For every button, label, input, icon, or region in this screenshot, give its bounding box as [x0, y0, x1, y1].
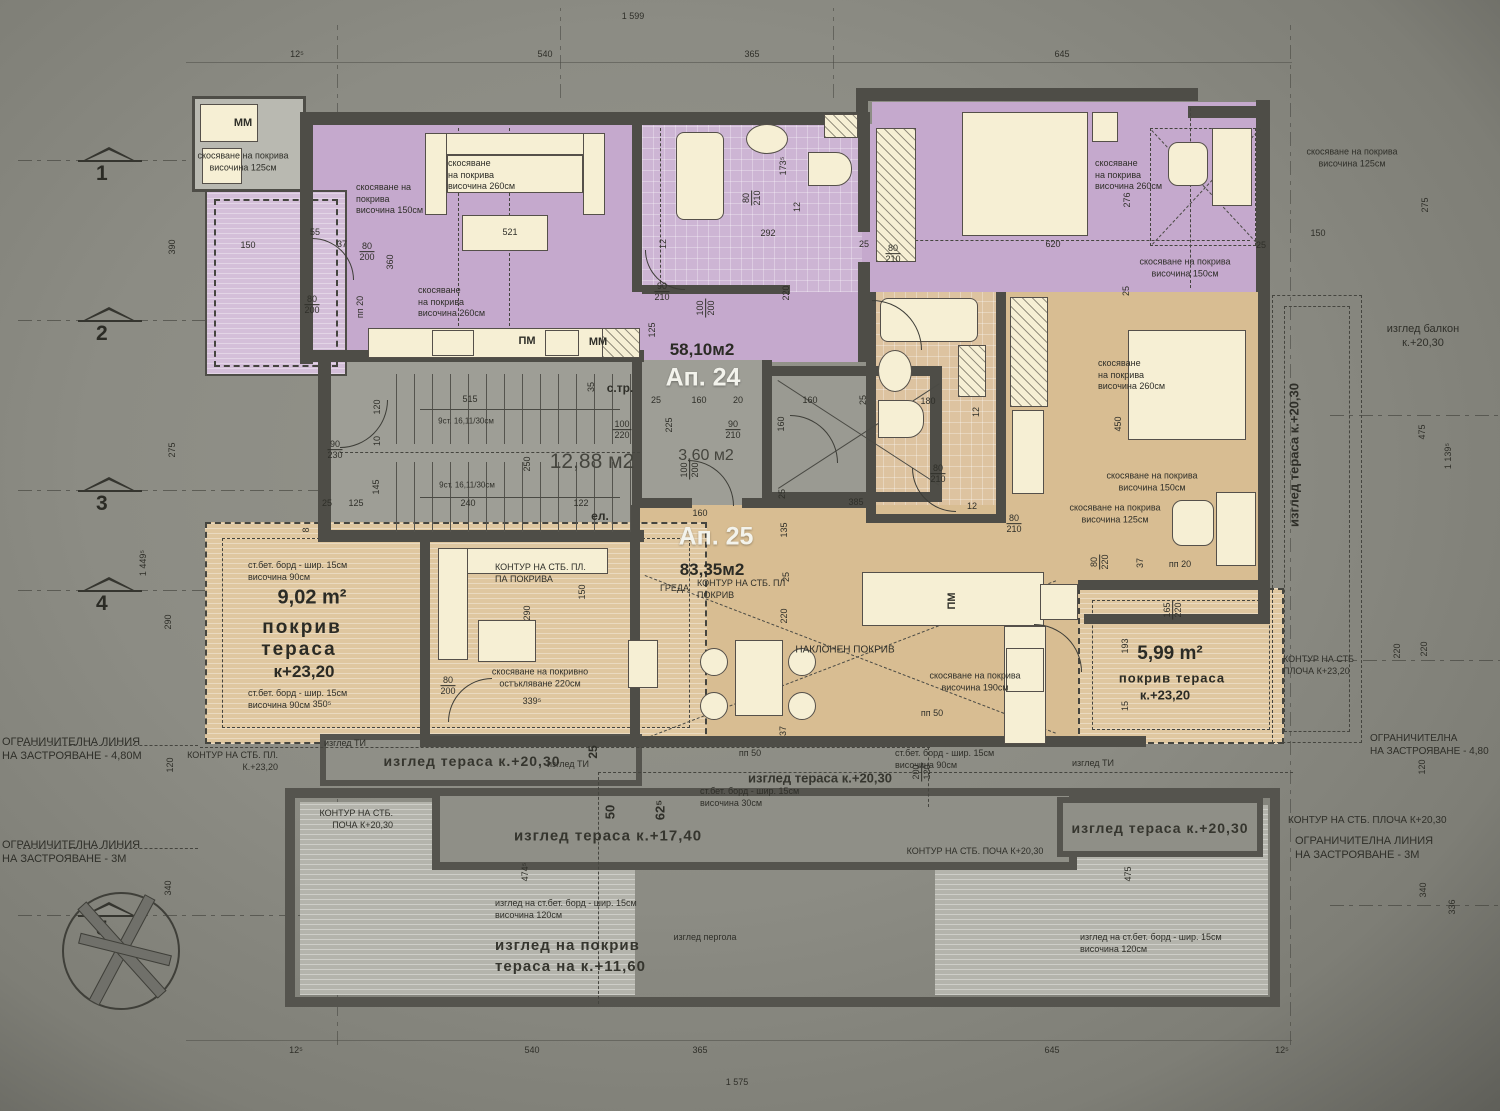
dim: 8 [301, 527, 311, 532]
contour-dash [598, 772, 1293, 773]
terrace-right-area: 5,99 m² [1137, 643, 1202, 665]
label-izgled-ti: изглед ТИ [324, 738, 366, 750]
dim-right: 1 139⁵ [1443, 443, 1453, 469]
dim: 173⁵ [778, 157, 788, 176]
label-pm-kitchen: ПМ [946, 592, 958, 609]
label-bord-120: изглед на ст.бет. борд - шир. 15см височ… [495, 898, 637, 921]
ap25-area: 83,35м2 [680, 560, 745, 580]
bath-cabinet [958, 345, 986, 397]
wall [420, 736, 642, 747]
dim: 339⁵ [523, 696, 542, 706]
bathtub [676, 132, 724, 220]
dining-chair [700, 692, 728, 720]
row-marker-4: 4 [96, 592, 108, 616]
row-marker-1: 1 [96, 162, 108, 186]
dim-right: 475 [1417, 424, 1427, 439]
wardrobe [1010, 297, 1048, 407]
label-roof-260: скосяване на покрива височина 260см [448, 158, 515, 193]
dim: 193 [1120, 638, 1130, 653]
wall [630, 736, 1146, 747]
wall [996, 292, 1006, 522]
dim: 25 [1121, 286, 1131, 296]
label-stair: с.тр. [607, 381, 634, 397]
terrace-table [478, 620, 536, 662]
dim-left: 290 [163, 614, 173, 629]
dim: 160 [692, 508, 707, 518]
dim-bottom: 645 [1044, 1045, 1059, 1055]
sofa [425, 133, 605, 155]
dim-door: 90210 [654, 281, 669, 303]
dim: 145 [371, 479, 381, 494]
shower-corner [824, 114, 858, 138]
label-izgled-pokriv-1160: изглед на покрив тераса на к.+11,60 [495, 935, 646, 977]
dim: 165220 [1162, 600, 1184, 619]
dim-door: 80210 [1006, 513, 1021, 535]
label-naklonen-pokriv: НАКЛОНЕН ПОКРИВ [795, 644, 894, 657]
label-limit-3-right: ОГРАНИЧИТЕЛНА ЛИНИЯ НА ЗАСТРОЯВАНЕ - 3М [1295, 834, 1433, 863]
stair-arrow-line [420, 497, 620, 498]
label-bord-90: ст.бет. борд - шир. 15см височина 90см [248, 560, 347, 583]
dim: 220 [779, 608, 789, 623]
row-marker-line [78, 590, 142, 592]
dim: 37 [337, 239, 347, 249]
dim: 276 [1122, 192, 1132, 207]
label-kontur-pocha-2030-left: КОНТУР НА СТБ. ПОЧА К+20,30 [278, 808, 393, 831]
dim: 180 [920, 396, 935, 406]
axis-line-row3 [18, 490, 333, 491]
dim: 292 [760, 228, 775, 238]
terrace-left-line2: тераса [261, 639, 336, 661]
terrace-left-line1: покрив [262, 617, 342, 639]
dim: 25 [586, 745, 600, 758]
tv-unit [628, 640, 658, 688]
dim: 475 [1123, 866, 1133, 881]
dim: пп 20 [1169, 559, 1191, 569]
dim-total-bottom: 1 575 [726, 1077, 749, 1087]
label-izgled-terasa-2030-right: изглед тераса к.+20,30 [1071, 820, 1248, 836]
wall [300, 112, 862, 125]
terrace-right-level: к.+23,20 [1140, 688, 1190, 703]
contour-dash [200, 747, 930, 748]
dim: 135 [779, 522, 789, 537]
dining-table [735, 640, 783, 716]
label-roof-150: скосяване на покрива височина 150см [356, 182, 423, 217]
dim-door: 80210 [885, 243, 900, 265]
axis-line-vertical [833, 8, 834, 98]
label-izgled-pergola: изглед пергола [673, 932, 736, 944]
dim: 160 [802, 395, 817, 405]
dim: 62⁵ [653, 800, 668, 821]
corner-sofa [438, 548, 468, 660]
dim: 150 [577, 584, 587, 599]
wardrobe [876, 128, 916, 262]
label-izgled-terasa-1740: изглед тераса к.+17,40 [514, 828, 702, 845]
label-kontur-plocha-2320: КОНТУР НА СТБ ПЛОЧА К+23,20 [1283, 654, 1354, 677]
dim-bottom: 540 [524, 1045, 539, 1055]
dim-door: 80200 [304, 294, 319, 316]
terrace-left-level: к+23,20 [274, 662, 335, 682]
stair-flight-label: 9ст. 16,11/30см [438, 417, 494, 426]
label-bord-120: изглед на ст.бет. борд - шир. 15см височ… [1080, 932, 1222, 955]
dim: 125 [647, 322, 657, 337]
dim: 12 [967, 501, 977, 511]
dim: 220 [781, 285, 791, 300]
dim: 240 [460, 498, 475, 508]
label-limit-48-left: ОГРАНИЧИТЕЛНА ЛИНИЯ НА ЗАСТРОЯВАНЕ - 4,8… [2, 735, 142, 764]
dim: 515 [462, 394, 477, 404]
row-marker-2: 2 [96, 322, 108, 346]
dim: 55 [310, 227, 320, 237]
ap24-label: Ап. 24 [666, 364, 741, 393]
label-roof-125-topright: скосяване на покрива височина 125см [1306, 146, 1397, 169]
row-marker-line [78, 320, 142, 322]
label-mm-utility: ММ [234, 116, 252, 130]
wall [866, 514, 1006, 523]
dim-door: 80200 [440, 675, 455, 697]
stair-flight-label: 9ст. 16,11/30см [439, 481, 495, 490]
dim-left: 275 [167, 442, 177, 457]
label-kontur-pocha-2030-right: КОНТУР НА СТБ. ПОЧА К+20,30 [907, 846, 1044, 858]
dim: 25 [1256, 240, 1266, 250]
dim: пп 20 [355, 296, 365, 318]
row-marker-icon [84, 577, 134, 590]
wall [858, 112, 870, 232]
dim: 20 [733, 395, 743, 405]
label-roof-260: скосяване на покрива височина 260см [418, 285, 485, 320]
dim-door: 80220 [1089, 554, 1111, 569]
dim-right: 336 [1447, 899, 1457, 914]
dim-door: 100200 [695, 298, 717, 317]
dim: 521 [502, 227, 517, 237]
row-marker-icon [84, 477, 134, 490]
dim: 250 [522, 456, 532, 471]
sink [746, 124, 788, 154]
label-roof-190: скосяване на покрива височина 190см [929, 670, 1020, 693]
sink [878, 350, 912, 392]
dim: 290 [522, 605, 532, 620]
dim-door: 90210 [725, 419, 740, 441]
dim: 25 [858, 395, 868, 405]
sofa [583, 133, 605, 215]
dim-right: 275 [1420, 197, 1430, 212]
dim-door: 80210 [741, 190, 763, 205]
dim: 12 [792, 202, 802, 212]
wall [420, 540, 430, 746]
dim: 25 [781, 572, 791, 582]
dim: 160 [776, 416, 786, 431]
dining-chair [788, 692, 816, 720]
chair [1168, 142, 1208, 186]
dim: 12 [658, 239, 668, 249]
dim-left: 390 [167, 239, 177, 254]
wall [632, 124, 642, 292]
dim-top: 645 [1054, 49, 1069, 59]
dim-door: 100220 [612, 419, 631, 441]
dim: пп 50 [921, 708, 943, 718]
nightstand [1092, 112, 1118, 142]
label-bord-30: ст.бет. борд - шир. 15см височина 30см [700, 786, 799, 809]
dim: 125 [348, 498, 363, 508]
dim: 25 [859, 239, 869, 249]
floor-plan-canvas: Properties [0, 0, 1500, 1111]
toilet [808, 152, 852, 186]
label-roof-125-topleft: скосяване на покрива височина 125см [197, 150, 288, 173]
dim-bottom: 12⁵ [1275, 1045, 1289, 1055]
label-kontur-pl-pokriva: КОНТУР НА СТБ. ПЛ. ПА ПОКРИВА [495, 562, 586, 585]
ap24-area: 58,10м2 [670, 340, 735, 360]
label-roof-150: скосяване на покрива височина 150см [1106, 470, 1197, 493]
dim-right: 120 [1417, 759, 1427, 774]
dim-line-bottom [186, 1040, 1292, 1041]
dim-right: 340 [1418, 882, 1428, 897]
bed [962, 112, 1088, 236]
ap25-label: Ап. 25 [679, 523, 754, 552]
label-limit-48-right: ОГРАНИЧИТЕЛНА НА ЗАСТРОЯВАНЕ - 4,80 [1370, 732, 1498, 758]
dim-door: 80200 [359, 241, 374, 263]
dim: 360 [385, 254, 395, 269]
microwave [1040, 584, 1078, 620]
label-roof-150: скосяване на покрива височина 150см [1139, 256, 1230, 279]
dim: 150 [240, 240, 255, 250]
dim-bottom: 365 [692, 1045, 707, 1055]
dim-door: 100200 [679, 460, 701, 479]
stair-arrow-line [420, 409, 620, 410]
dim: 350⁵ [313, 699, 332, 709]
stove [432, 330, 474, 356]
dim: 160 [691, 395, 706, 405]
label-roof-260: скосяване на покрива височина 260см [1095, 158, 1162, 193]
label-roof-125: скосяване на покрива височина 125см [1069, 502, 1160, 525]
dim-top: 365 [744, 49, 759, 59]
row-marker-3: 3 [96, 492, 108, 516]
label-izgled-ti: изглед ТИ [547, 759, 589, 771]
kitchen-cabinet [602, 328, 640, 358]
row-marker-icon [84, 307, 134, 320]
dim: пп 50 [739, 748, 761, 758]
label-roof-260: скосяване на покрива височина 260см [1098, 358, 1165, 393]
dim: 50 [603, 805, 618, 819]
dim-left: 1 449⁵ [138, 550, 148, 576]
dim: 10 [372, 436, 382, 446]
label-limit-3-left: ОГРАНИЧИТЕЛНА ЛИНИЯ НА ЗАСТРОЯВАНЕ - 3М [2, 838, 140, 867]
row-marker-icon [84, 147, 134, 160]
dim-top: 12⁵ [290, 49, 304, 59]
terrace-left-area: 9,02 m² [278, 587, 347, 610]
dim: 15 [1120, 701, 1130, 711]
label-kontur-plocha-2030: КОНТУР НА СТБ. ПЛОЧА К+20,30 [1288, 814, 1447, 827]
dim: 122 [573, 498, 588, 508]
dim-right: 220 [1392, 643, 1402, 658]
dresser [1012, 410, 1044, 494]
axis-line-vertical [560, 8, 561, 98]
stair-area: 12,88 м2 [550, 450, 635, 474]
toilet [878, 400, 924, 438]
dim-door: 90230 [327, 439, 342, 461]
dim: 620 [1045, 239, 1060, 249]
dim-right: 220 [1419, 641, 1429, 656]
dining-chair [700, 648, 728, 676]
label-izgled-terasa-2030-mid: изглед тераса к.+20,30 [748, 771, 892, 786]
desk [1212, 128, 1252, 206]
wall [630, 505, 640, 747]
label-kontur-pl-pokriv: КОНТУР НА СТБ. ПЛ ПОКРИВ [697, 578, 785, 601]
dim: 385 [848, 497, 863, 507]
label-greda: ГРЕДА [660, 583, 689, 595]
dim: 225 [664, 417, 674, 432]
terrace-purple-inner-dash [214, 199, 338, 367]
dim-top: 540 [537, 49, 552, 59]
label-pm: ПМ [518, 334, 535, 348]
wall [1258, 292, 1270, 624]
label-kontur-pl-2320: КОНТУР НА СТБ. ПЛ. К.+23,20 [168, 750, 278, 773]
chair [1172, 500, 1214, 546]
kitchen-sink [545, 330, 579, 356]
desk [1216, 492, 1256, 566]
dim: 25 [322, 498, 332, 508]
label-izgled-balkon: изглед балкон к.+20,30 [1368, 322, 1478, 351]
dim: 120 [372, 399, 382, 414]
label-mm: ММ [589, 335, 607, 349]
dim: 37 [1135, 558, 1145, 568]
dim: 450 [1113, 416, 1123, 431]
dim: 37 [778, 726, 788, 736]
row-marker-line [78, 490, 142, 492]
label-izgled-terasa-right: изглед тераса к.+20,30 [1287, 383, 1302, 527]
label-izgled-terasa-2030-left: изглед тераса к.+20,30 [383, 753, 560, 769]
north-compass [62, 892, 180, 1010]
dim-bottom: 12⁵ [289, 1045, 303, 1055]
wall [762, 360, 772, 506]
sofa [425, 133, 447, 215]
dim: 35 [586, 382, 596, 392]
dim-left: 340 [163, 880, 173, 895]
dim-line-top [186, 62, 1292, 63]
label-roof-glazing: скосяване на покривно остъкляване 220см [492, 666, 588, 689]
dim-right: 150 [1310, 228, 1325, 238]
dim-door: 80210 [930, 463, 945, 485]
row-marker-line [78, 160, 142, 162]
label-bord-90: ст.бет. борд - шир. 15см височина 90см [248, 688, 347, 711]
dim: 12 [971, 407, 981, 417]
wall [1078, 580, 1270, 590]
label-izgled-ti: изглед ТИ [1072, 758, 1114, 770]
dim: 25 [777, 489, 787, 499]
terrace-right-line1: покрив тераса [1119, 671, 1225, 686]
label-elevator: ел. [591, 509, 609, 525]
label-bord-90: ст.бет. борд - шир. 15см височина 90см [895, 748, 994, 771]
wall-elevator [762, 366, 940, 376]
axis-line [1330, 905, 1500, 906]
dim: 474⁵ [520, 863, 530, 882]
wall [856, 88, 1198, 101]
wall [632, 498, 692, 508]
dim-total-top: 1 599 [622, 11, 645, 21]
dim: 25 [651, 395, 661, 405]
